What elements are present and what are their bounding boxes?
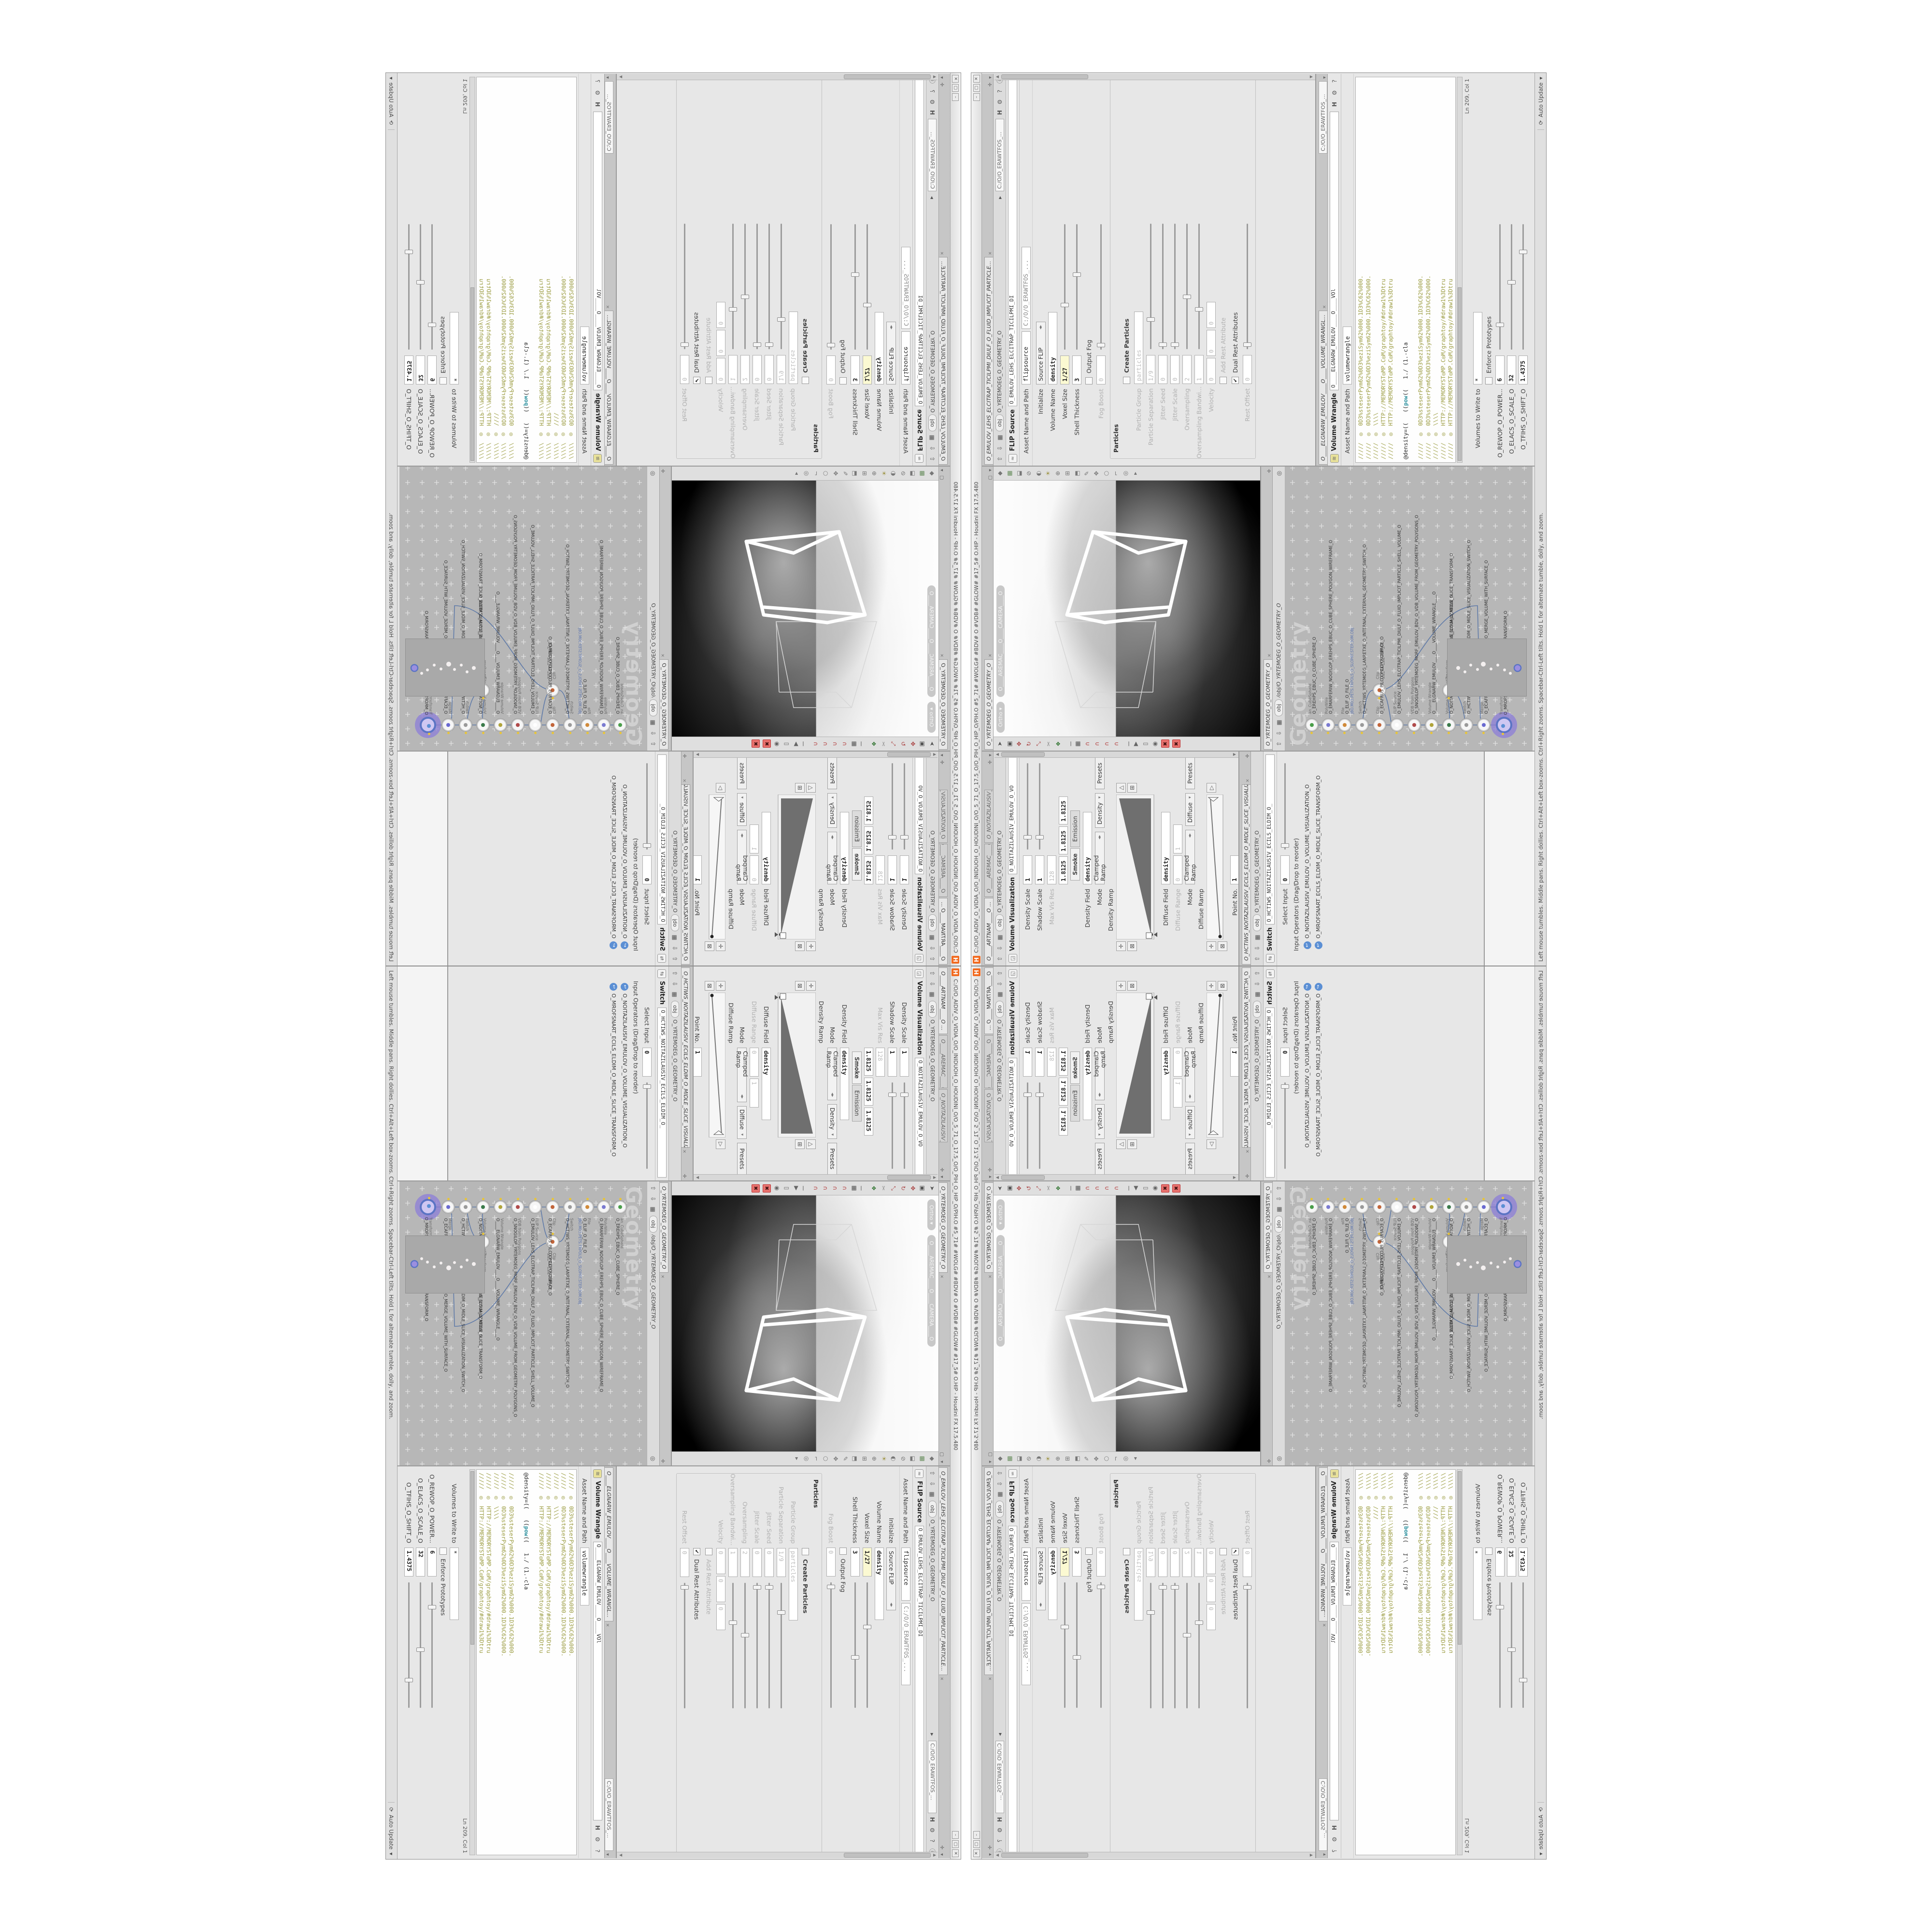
network-node[interactable]: VDB from PolygonsO_SNOGILOP_YRTEMOEG_MOR…	[1408, 719, 1421, 731]
tab-camera[interactable]: O____AREMAC____O ...	[939, 844, 948, 897]
pane-menu-icon[interactable]: ▾	[988, 1852, 993, 1857]
viewport-render[interactable]: Ortho ▾ O____AREMAC____O____CAMERA____O	[994, 481, 1260, 737]
nav-down-icon[interactable]: ⇩	[996, 1479, 1003, 1488]
select-arrow-icon[interactable]: ➤	[929, 739, 936, 748]
wrangle-param-field[interactable]: 32	[1507, 1548, 1516, 1577]
density-ramp[interactable]: ✛ ⊠	[1116, 981, 1158, 1175]
update-mode-control[interactable]: ⟳ Auto Update ▾	[388, 1802, 395, 1855]
network-node[interactable]: FileO_ELIF_O_FILE_OJBO.M03.PETS.TRPOLS_O…	[1338, 1201, 1351, 1213]
velocity-x-field[interactable]: 0	[1207, 1548, 1216, 1574]
rest-offset-field[interactable]: 0	[680, 355, 689, 384]
axis-tripod-icon[interactable]: ❖	[1055, 1184, 1062, 1193]
network-node[interactable]: TransformO_MROFSNART_TLUSER_O_RESULT_TRA…	[1496, 717, 1512, 733]
wrangle-param-slider[interactable]	[432, 224, 433, 350]
software-path-field[interactable]: C:/O/O_ERAWTFOS_...	[605, 1778, 613, 1851]
tab-close-icon[interactable]: ✕	[682, 778, 686, 783]
play-flag-icon[interactable]: ▶	[1132, 739, 1139, 748]
point-no-field[interactable]: 1	[1230, 1048, 1239, 1077]
diffuse-combo[interactable]: Diffuse▾	[738, 1106, 747, 1139]
network-node[interactable]: ClipO_ECAFRUS_PILC_O_CLIP_SURFACE_O	[1373, 1201, 1386, 1213]
particle-group-field[interactable]: particles	[1134, 1548, 1143, 1620]
node-flag-icon[interactable]	[1327, 1198, 1329, 1200]
nav-down-icon[interactable]: ⇩	[1276, 1194, 1282, 1203]
node-flag-icon[interactable]	[499, 1198, 502, 1200]
max-vis-res-field[interactable]: 128	[1047, 1048, 1056, 1077]
breadcrumb[interactable]: O_YRTEMOEG_O_GEOMETRY_O	[929, 1520, 936, 1602]
tab-camera[interactable]: O____AREMAC____O ...	[939, 1035, 948, 1088]
obj-breadcrumb-chip[interactable]: obj	[995, 1501, 1004, 1518]
tab-visualization[interactable]: O_NOITAZILAUSIV_E...	[939, 1089, 948, 1142]
node-flag-icon[interactable]	[447, 1198, 450, 1200]
network-node[interactable]: MergeO_ECAFRUS_HTIW_EMULOV_EGREM_O_MERGE…	[442, 719, 455, 731]
density-combo[interactable]: Density▾	[828, 1104, 838, 1139]
houdini-badge-icon[interactable]: H	[996, 1815, 1003, 1824]
input-operator-row[interactable]: ↩ O_NOITAZILAUSIV_EMULOV_O_VOLUME_VISUAL…	[619, 753, 630, 966]
ramp-add-icon[interactable]: ✛	[806, 981, 816, 991]
film-reel-icon[interactable]: ◉	[1151, 1184, 1158, 1193]
jitter-seed-slider[interactable]	[768, 224, 770, 349]
rest-offset-field[interactable]: 0	[680, 1548, 689, 1577]
software-path-field[interactable]: C:/O/O_ERAWTFOS_...	[605, 81, 613, 154]
tab-emission[interactable]: Emission	[1070, 810, 1080, 847]
obj-breadcrumb-chip[interactable]: obj	[1275, 1216, 1283, 1233]
play-flag-icon[interactable]: ▶	[793, 739, 800, 748]
density-combo[interactable]: Density▾	[828, 793, 838, 828]
tab-scene-view[interactable]: O_YRTEMOEG_O_GEOMETRY_O	[984, 1182, 993, 1273]
shadow-scale-field[interactable]: 1	[888, 1048, 897, 1077]
title-bar[interactable]: H C:/O/O_AIDIV_O_VIDIA_O/O_INIDUOH_O_HOU…	[971, 966, 982, 1859]
view-box-icon[interactable]: ▣	[919, 1184, 926, 1193]
nav-down-icon[interactable]: ⇩	[1254, 980, 1261, 988]
particle-separation-field[interactable]: 1/9	[1146, 1548, 1155, 1577]
nav-down-icon[interactable]: ⇩	[672, 944, 679, 952]
network-node[interactable]: ClipO_ECAFRUS_PILC_O_CLIP_SURFACE_O	[546, 719, 559, 731]
snip-icon[interactable]: ✂	[880, 1184, 887, 1193]
network-node[interactable]: an_CubeSphereO_EREHPS_EBUC_O_CUBE_SPHERE…	[1306, 719, 1318, 731]
node-flag-icon[interactable]	[465, 732, 467, 734]
point-display-icon[interactable]: ○	[1103, 1454, 1109, 1463]
lock-camera-icon[interactable]: ⬓	[909, 469, 916, 478]
shaded-mode-icon[interactable]: ◐	[1035, 469, 1042, 478]
ramp-expand-icon[interactable]: ⊞	[795, 783, 805, 793]
node-flag-icon[interactable]	[1502, 733, 1504, 735]
code-hscrollbar[interactable]	[1457, 77, 1463, 463]
pane-maximize-icon[interactable]: ▢	[939, 474, 944, 481]
pane-menu-icon[interactable]: ▾	[988, 468, 993, 473]
node-name-field[interactable]: O____ELGNARW_EMULOV____O____VOl	[593, 112, 602, 390]
density-field-input[interactable]: density	[1083, 812, 1092, 884]
pan-hand-icon[interactable]: ✥	[832, 469, 839, 478]
obj-breadcrumb-chip[interactable]: obj	[995, 414, 1004, 431]
flipbook-icon[interactable]: ▦	[929, 433, 936, 442]
pane-menu-icon[interactable]: ▾	[988, 1174, 993, 1179]
flip-scrollbar[interactable]: ▲▼	[617, 74, 938, 80]
grid-display-icon[interactable]: ⊞	[1064, 1454, 1071, 1463]
pane-menu-icon[interactable]: ▾	[939, 468, 944, 473]
breadcrumb[interactable]: O_YRTEMOEG_O_GEOMETRY_O	[929, 830, 936, 912]
divider[interactable]: ▁	[1122, 1184, 1129, 1193]
nav-down-icon[interactable]: ⇩	[929, 944, 936, 952]
flipbook-icon[interactable]: ▦	[996, 933, 1003, 942]
network-node[interactable]: TransformO_MROFSNART_TLUSER_O_RESULT_TRA…	[420, 1199, 436, 1215]
jitter-scale-slider[interactable]	[756, 1583, 758, 1708]
flipbook-icon[interactable]: ▦	[996, 433, 1003, 442]
point-no-field[interactable]: 1	[1230, 855, 1239, 884]
close-button[interactable]: ✕	[973, 1849, 980, 1857]
pane-menu-icon[interactable]: ▾	[1322, 75, 1327, 80]
software-path-field[interactable]: C:/O/O_ERAWTFOS_...	[995, 119, 1004, 191]
network-path[interactable]: /obj/O_YRTEMOEG_O_GEOMETRY_O	[1276, 603, 1282, 697]
nav-up-icon[interactable]: ⇧	[672, 954, 679, 963]
tab-camera[interactable]: O____AREMAC____O ...	[984, 844, 993, 897]
select-arrow-icon[interactable]: ➤	[996, 739, 1003, 748]
node-name-field[interactable]: O_EMULOV_LEHS_ELCITRAP_TICILPMI_DI	[915, 1526, 924, 1855]
divider[interactable]: ▁	[1065, 1184, 1071, 1193]
node-flag-icon[interactable]	[1502, 1197, 1504, 1199]
tab-smoke[interactable]: Smoke	[852, 848, 862, 881]
pane-split-icon[interactable]: ✛	[939, 759, 944, 766]
wrangle-param-slider[interactable]	[420, 1582, 422, 1708]
nav-down-icon[interactable]: ⇩	[650, 1194, 657, 1203]
obj-breadcrumb-chip[interactable]: obj	[671, 1001, 679, 1018]
network-canvas[interactable]: Geometry an_CubeSphereO_EREHPS_EBUC_O_CU…	[1285, 1181, 1533, 1465]
diffuse-ramp-graph[interactable]	[706, 795, 725, 939]
lighting-icon[interactable]: ☀	[881, 469, 887, 478]
play-icon[interactable]: ▸	[929, 1730, 936, 1739]
tab-close-icon[interactable]: ✕	[1267, 1274, 1272, 1279]
title-bar[interactable]: H C:/O/O_AIDIV_O_VIDIA_O/O_INIDUOH_O_HOU…	[950, 73, 961, 966]
nav-down-icon[interactable]: ⇩	[996, 944, 1003, 952]
tab-close-icon[interactable]: ✕	[1267, 653, 1272, 658]
nav-up-icon[interactable]: ⇧	[929, 969, 936, 978]
input-operator-row[interactable]: ↩ O_NOITAZILAUSIV_EMULOV_O_VOLUME_VISUAL…	[1302, 753, 1313, 966]
stow-close-icon[interactable]: ✖	[752, 740, 760, 748]
asset-name-field[interactable]: flipsource	[902, 331, 911, 384]
node-flag-icon[interactable]	[428, 1197, 430, 1199]
asset-name-field[interactable]: volumewrangle	[580, 1548, 589, 1605]
node-name-field[interactable]: O_HCTIWS_NOITAZILAUSIV_ECILS_ELDIM_O_	[1265, 1008, 1275, 1178]
diffuse-range-max[interactable]: 1	[1173, 1079, 1182, 1108]
magnet-point-icon[interactable]: ∩	[832, 739, 838, 748]
ramp-delete-icon[interactable]: ⊠	[1127, 941, 1137, 951]
particle-separation-slider[interactable]	[1150, 1583, 1151, 1708]
create-particles-checkbox[interactable]	[802, 1548, 809, 1555]
shell-thickness-field[interactable]: 3	[1072, 355, 1081, 384]
node-name-field[interactable]: O____ELGNARW_EMULOV____O____VOl	[593, 1542, 602, 1820]
houdini-badge-icon[interactable]: H	[996, 108, 1003, 117]
flipbook-icon[interactable]: ▦	[1276, 718, 1282, 727]
help-icon[interactable]: ?	[1331, 77, 1338, 85]
grid-display-icon[interactable]: ⊞	[1064, 469, 1071, 478]
pane-menu-icon[interactable]: ▾	[988, 753, 993, 758]
diffuse-combo[interactable]: Diffuse▾	[1185, 1106, 1195, 1139]
vex-code-editor[interactable]: ///// ◎ 0D3%steserPym62%0D3%eziSym62%000…	[476, 77, 577, 463]
half-display-icon[interactable]: ⬒	[1074, 469, 1080, 478]
breadcrumb[interactable]: O_YRTEMOEG_O_GEOMETRY_O	[929, 1020, 936, 1102]
network-node[interactable]: Volume WrangleO____ELGNARW_EMULOV____O__…	[1425, 1201, 1438, 1213]
key-icon[interactable]: ⌐	[1112, 469, 1119, 478]
tab-emission[interactable]: Emission	[1070, 1085, 1080, 1121]
network-node[interactable]: VDB from PolygonsO_SNOGILOP_YRTEMOEG_MOR…	[511, 719, 524, 731]
divider[interactable]: ▁	[1122, 739, 1129, 748]
ramp-add-icon[interactable]: ✛	[1116, 981, 1126, 991]
network-path[interactable]: /obj/O_YRTEMOEG_O_GEOMETRY_O	[650, 1235, 656, 1329]
wrangle-param-field[interactable]: 6	[428, 1548, 437, 1577]
node-flag-icon[interactable]	[1448, 732, 1450, 734]
wrangle-param-field[interactable]: 1.4375	[1519, 355, 1528, 384]
close-button[interactable]: ✕	[952, 1849, 959, 1857]
tab-switch[interactable]: O_HCTIWS_NOITAZILAUSIV_ECILS_ELDIM_O_MID…	[1242, 967, 1250, 1148]
update-mode-control[interactable]: ⟳ Auto Update ▾	[1537, 77, 1544, 130]
flipbook-icon[interactable]: ▦	[1254, 990, 1261, 999]
tab-volume-wrangle[interactable]: O____ELGNARW_EMULOV____O____VOLUME_WRANG…	[605, 311, 613, 465]
ramp-delete-icon[interactable]: ⊠	[795, 981, 805, 991]
play-icon[interactable]: ▸	[996, 1730, 1003, 1739]
divider[interactable]: ▁	[803, 1184, 810, 1193]
tab-scene-view[interactable]: O_YRTEMOEG_O_GEOMETRY_O	[939, 1182, 948, 1273]
node-flag-icon[interactable]	[517, 732, 519, 734]
asset-name-field[interactable]: flipsource	[1022, 1548, 1031, 1601]
asset-name-field[interactable]: volumewrangle	[1343, 1548, 1352, 1605]
dual-rest-checkbox[interactable]: ✔	[693, 1548, 700, 1555]
network-node[interactable]: MergeO_ECAFRUS_HTIW_EMULOV_EGREM_O_MERGE…	[1477, 719, 1490, 731]
breadcrumb[interactable]: O_YRTEMOEG_O_GEOMETRY_O	[996, 1520, 1003, 1602]
node-flag-icon[interactable]	[603, 1198, 605, 1200]
stow-close-icon[interactable]: ✖	[1172, 1184, 1180, 1193]
film-reel-icon[interactable]: ◉	[1151, 739, 1158, 748]
nav-down-icon[interactable]: ⇩	[929, 444, 936, 453]
rotate-tool-icon[interactable]: ↻	[1025, 1184, 1032, 1193]
tab-flip-source[interactable]: O_EMULOV_LEHS_ELCITRAP_TICILPMI_DIULF_O_…	[984, 257, 993, 465]
tab-close-icon[interactable]: ✕	[605, 1622, 610, 1628]
divider[interactable]: ▁	[803, 739, 810, 748]
flipbook-icon[interactable]: ▦	[650, 718, 657, 727]
diffuse-range-min[interactable]: 0	[1173, 1048, 1182, 1077]
network-node[interactable]: MergeO_ECAFRUS_HTIW_EMULOV_EGREM_O_MERGE…	[1477, 1201, 1490, 1213]
annotate-icon[interactable]: ✎	[842, 469, 849, 478]
ramp-delete-icon[interactable]: ⊠	[795, 941, 805, 951]
node-name-field[interactable]: O_HCTIWS_NOITAZILAUSIV_ECILS_ELDIM_O_	[657, 1008, 667, 1178]
ramp-flip-icon[interactable]: △	[1116, 1139, 1126, 1149]
lock-camera-icon[interactable]: ⬓	[1016, 1454, 1023, 1463]
flipbook-icon[interactable]: ▦	[1276, 1205, 1282, 1214]
ramp-flip-icon[interactable]: △	[806, 783, 816, 793]
diffuse-combo[interactable]: Diffuse▾	[738, 793, 747, 826]
volume-name-field[interactable]: density	[1048, 1548, 1057, 1620]
half-display-icon[interactable]: ⬒	[852, 1454, 858, 1463]
jitter-scale-field[interactable]: 0	[1170, 355, 1179, 384]
axis-tripod-icon[interactable]: ❖	[870, 739, 877, 748]
velocity-x-field[interactable]: 0	[716, 1548, 725, 1574]
value-field-2[interactable]: 1.8125	[1059, 826, 1068, 854]
help-icon[interactable]: ?	[996, 1836, 1003, 1845]
oversampling-field[interactable]: 2	[1182, 355, 1192, 384]
asset-name-field[interactable]: volumewrangle	[580, 327, 589, 384]
code-hscrollbar[interactable]	[469, 77, 475, 463]
flipbook-icon[interactable]: ▦	[672, 990, 679, 999]
voxel-size-slider[interactable]	[1064, 1582, 1065, 1708]
point-no-field[interactable]: 1	[693, 855, 702, 884]
key-icon[interactable]: ⌐	[813, 1454, 820, 1463]
particle-group-field[interactable]: particles	[1134, 312, 1143, 384]
half-display-icon[interactable]: ⬒	[852, 469, 858, 478]
network-minimap[interactable]	[1447, 1236, 1527, 1293]
code-hscrollbar[interactable]	[469, 1469, 475, 1855]
nav-down-icon[interactable]: ⇩	[996, 980, 1003, 988]
ramp-expand-icon[interactable]: ⊞	[795, 1139, 805, 1149]
network-canvas[interactable]: Geometry an_CubeSphereO_EREHPS_EBUC_O_CU…	[399, 467, 647, 751]
pane-menu-icon[interactable]: ▾	[605, 75, 610, 80]
oversampling-bandwidth-slider[interactable]	[732, 1583, 734, 1708]
inspect-icon[interactable]: ◎	[1122, 469, 1129, 478]
presets2-button[interactable]: Presets	[738, 757, 747, 789]
pane-split-icon[interactable]: ✛	[1267, 1458, 1272, 1464]
network-path[interactable]: /obj/O_YRTEMOEG_O_GEOMETRY_O	[1276, 1235, 1282, 1329]
select-input-slider[interactable]	[1284, 1082, 1286, 1169]
node-flag-icon[interactable]	[482, 732, 484, 734]
oversampling-slider[interactable]	[744, 1583, 746, 1708]
nav-down-icon[interactable]: ⇩	[1254, 944, 1261, 952]
node-flag-icon[interactable]	[517, 1198, 519, 1200]
output-fog-checkbox[interactable]	[1085, 1548, 1093, 1555]
flipbook-icon[interactable]: ▦	[672, 933, 679, 942]
voxel-size-field[interactable]: 1/27	[863, 1548, 872, 1577]
create-particles-checkbox[interactable]	[1123, 1548, 1130, 1555]
vex-code-editor[interactable]: ///// ◎ 0D3%steserPym62%0D3%eziSym62%000…	[476, 1469, 577, 1855]
refresh-icon[interactable]: ⟳	[388, 120, 395, 125]
gear-icon[interactable]: ⚙	[595, 88, 601, 97]
diffuse-field-input[interactable]: density	[762, 812, 771, 884]
flip-scrollbar[interactable]: ▲▼	[994, 1852, 1315, 1858]
asset-name-field[interactable]: volumewrangle	[1343, 327, 1352, 384]
network-node[interactable]: TransformO_MROFSNART_TLUSER_O_RESULT_TRA…	[420, 717, 436, 733]
presets-button[interactable]: Presets	[828, 1143, 838, 1175]
particle-separation-field[interactable]: 1/9	[777, 1548, 786, 1577]
jitter-seed-field[interactable]: 0	[1158, 355, 1167, 384]
node-flag-icon[interactable]	[1413, 1198, 1415, 1200]
network-canvas[interactable]: Geometry an_CubeSphereO_EREHPS_EBUC_O_CU…	[399, 1181, 647, 1465]
refresh-icon[interactable]: ⟳	[388, 1807, 395, 1812]
inspect-icon[interactable]: ◎	[803, 469, 810, 478]
snip-icon[interactable]: ✂	[1045, 739, 1052, 748]
value-field-1[interactable]: 1.8125	[864, 1048, 873, 1076]
node-flag-icon[interactable]	[1361, 732, 1363, 734]
oversampling-bandwidth-slider[interactable]	[732, 224, 734, 349]
node-name-field[interactable]: O_NOITAZILAUSIV_EMULOV_O_VO	[915, 1058, 924, 1178]
node-name-field[interactable]: O_EMULOV_LEHS_ELCITRAP_TICILPMI_DI	[1008, 77, 1017, 406]
tab-visualization[interactable]: O_NOITAZILAUSIV_E...	[984, 1089, 993, 1142]
select-input-field[interactable]: 0	[642, 1048, 652, 1077]
pane-split-icon[interactable]: ✛	[939, 81, 944, 88]
refresh-icon[interactable]: ⟳	[1537, 1807, 1544, 1812]
ramp2-add-icon[interactable]: ✛	[1207, 981, 1216, 991]
output-fog-checkbox[interactable]	[839, 377, 847, 384]
nav-down-icon[interactable]: ⇩	[1276, 729, 1282, 738]
particle-separation-field[interactable]: 1/9	[1146, 355, 1155, 384]
input-jump-icon[interactable]: ↩	[1304, 983, 1311, 991]
ramp2-pointer-icon[interactable]: ▷	[1207, 783, 1216, 793]
network-node[interactable]: Volume VisualizationO_NOITAZILAUSIV_EMUL…	[1443, 719, 1455, 731]
wrangle-param-field[interactable]: 32	[416, 1548, 426, 1577]
oversampling-bandwidth-slider[interactable]	[1198, 1583, 1200, 1708]
nav-up-icon[interactable]: ⇧	[929, 455, 936, 463]
rest-offset-field[interactable]: 0	[1243, 1548, 1252, 1577]
initialize-dropdown[interactable]: Source FLIP◂▸	[1036, 322, 1046, 384]
tab-close-icon[interactable]: ✕	[682, 1149, 686, 1154]
particle-group-field[interactable]: particles	[789, 1548, 798, 1620]
pane-menu-icon[interactable]: ▾	[605, 1852, 610, 1857]
divider[interactable]: ▁	[861, 1184, 867, 1193]
jitter-seed-slider[interactable]	[1162, 1583, 1164, 1708]
houdini-badge-icon[interactable]: H	[1331, 1823, 1338, 1832]
ramp-add-icon[interactable]: ✛	[806, 941, 816, 951]
node-flag-icon[interactable]	[1465, 1198, 1467, 1200]
rest-offset-slider[interactable]	[684, 224, 685, 349]
play-icon[interactable]: ▸	[996, 193, 1003, 202]
initialize-dropdown[interactable]: Source FLIP◂▸	[887, 322, 896, 384]
diamond-view-icon[interactable]: ◆	[996, 1454, 1003, 1463]
minimize-button[interactable]: –	[952, 1831, 959, 1839]
divider[interactable]: ▁	[861, 739, 867, 748]
software-path-field[interactable]: C:/O/O_ERAWTFOS_...	[928, 1741, 937, 1813]
input-jump-icon[interactable]: ↩	[1315, 983, 1322, 991]
shell-thickness-field[interactable]: 3	[851, 1548, 860, 1577]
jitter-seed-slider[interactable]	[1162, 224, 1164, 349]
wrangle-param-field[interactable]: 32	[1507, 355, 1516, 384]
viz-scrollbar[interactable]: ▲▼	[994, 752, 1238, 758]
network-node[interactable]: FileO_ELIF_O_FILE_OJBO.M03.PETS.TRPOLS_O…	[581, 719, 594, 731]
move-tool-icon[interactable]: ✥	[909, 1184, 916, 1193]
shaded-mode-icon[interactable]: ◐	[1035, 1454, 1042, 1463]
tab-mantra[interactable]: O____ARTNAM____O ...	[984, 898, 993, 965]
network-node[interactable]: SwitchO_HCTIWS_NOITAZILAUSIV_ECILS_ELDIM…	[459, 1201, 472, 1213]
value-field-3[interactable]: 1.8125	[1059, 796, 1068, 824]
node-flag-icon[interactable]	[482, 1233, 484, 1235]
obj-breadcrumb-chip[interactable]: obj	[1275, 699, 1283, 716]
snip-icon[interactable]: ✂	[880, 739, 887, 748]
density-ramp-graph[interactable]	[1116, 795, 1158, 939]
breadcrumb[interactable]: O_YRTEMOEG_O_GEOMETRY_O	[672, 1020, 678, 1102]
input-operator-row[interactable]: ↩ O_MROFSNART_ECILS_ELDIM_O_MIDLE_SLICE_…	[608, 966, 619, 1179]
select-input-slider[interactable]	[1284, 763, 1286, 850]
tab-flip-source[interactable]: O_EMULOV_LEHS_ELCITRAP_TICILPMI_DIULF_O_…	[939, 257, 948, 465]
tab-close-icon[interactable]: ✕	[660, 653, 665, 658]
input-operator-row[interactable]: ↩ O_NOITAZILAUSIV_EMULOV_O_VOLUME_VISUAL…	[619, 966, 630, 1179]
node-flag-icon[interactable]	[619, 1198, 622, 1200]
rotate-tool-icon[interactable]: ↻	[900, 1184, 907, 1193]
network-node[interactable]: SwitchO_HCTIWS_NOITAZILAUSIV_ECILS_ELDIM…	[1460, 1201, 1473, 1213]
dual-rest-checkbox[interactable]: ✔	[1232, 377, 1239, 384]
select-arrow-icon[interactable]: ➤	[996, 1184, 1003, 1193]
no-select-icon[interactable]: ⊘	[1025, 1454, 1032, 1463]
houdini-badge-icon[interactable]: H	[929, 1815, 936, 1824]
fog-boost-slider[interactable]	[830, 224, 832, 350]
particle-separation-slider[interactable]	[781, 224, 782, 349]
no-select-icon[interactable]: ⊘	[1025, 469, 1032, 478]
output-fog-checkbox[interactable]	[839, 1548, 847, 1555]
jitter-seed-field[interactable]: 0	[765, 1548, 774, 1577]
film-reel-icon[interactable]: ◉	[774, 739, 781, 748]
oversampling-field[interactable]: 2	[740, 355, 750, 384]
dual-rest-checkbox[interactable]: ✔	[693, 377, 700, 384]
node-flag-icon[interactable]	[1343, 732, 1346, 734]
tab-network[interactable]: O_YRTEMOEG_O_GEOMETRY_O	[660, 1182, 668, 1273]
node-flag-icon[interactable]	[1395, 1198, 1398, 1200]
obj-breadcrumb-chip[interactable]: obj	[928, 1001, 937, 1018]
select-input-slider[interactable]	[646, 1082, 648, 1169]
magnet-edge-icon[interactable]: ∩	[822, 1184, 829, 1193]
help-icon[interactable]: ?	[929, 87, 936, 96]
